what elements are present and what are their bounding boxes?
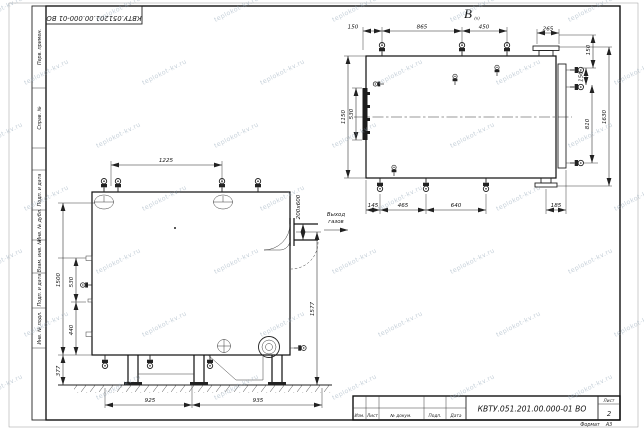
- bottom-dim-640: 640: [451, 203, 462, 209]
- drawing-sheet: КВТУ.051201.00.000-01 ВО Перв. примен. С…: [0, 0, 644, 430]
- top-view: [354, 43, 584, 192]
- top-doc-stamp: КВТУ.051201.00.000-01 ВО: [46, 14, 142, 22]
- bottom-dim-465: 465: [398, 203, 409, 209]
- blueprint-page: КВТУ.051201.00.000-01 ВО Перв. примен. С…: [0, 0, 644, 430]
- left-dim-1150: 1150: [341, 109, 347, 124]
- left-stamp-column: Перв. примен. Справ. № Подп. и дата Инв.…: [37, 29, 43, 345]
- top-dim-865: 865: [417, 25, 428, 31]
- border-label-inv-podl: Инв. № подл.: [37, 311, 43, 344]
- front-dim-right-1577: 1577: [310, 301, 316, 316]
- front-dim-left-530: 530: [69, 276, 75, 287]
- bottom-dim-145: 145: [368, 203, 379, 209]
- tb-col-izm: Изм.: [354, 413, 364, 419]
- top-dim-450: 450: [479, 25, 490, 31]
- tb-col-data: Дата: [449, 413, 461, 419]
- view-label: В: [464, 6, 472, 21]
- right-dim-150: 150: [579, 71, 585, 82]
- border-label-podp-data-2: Подп. и дата: [37, 274, 43, 307]
- border-label-sprav-no: Справ. №: [37, 106, 43, 129]
- border-label-podp-data-1: Подп. и дата: [37, 174, 43, 207]
- front-dim-bottom-925: 925: [145, 398, 156, 404]
- border-label-inv-dubl: Инв. № дубл.: [37, 209, 43, 242]
- border-label-vzam-inv: Взам. инв. №: [37, 240, 43, 273]
- left-dim-530: 530: [349, 108, 355, 119]
- top-dim-265: 265: [543, 27, 554, 33]
- flue-note-line2: газов: [328, 219, 343, 225]
- title-block: Изм. Лист № докум. Подп. Дата КВТУ.051.2…: [353, 396, 620, 428]
- tb-sheet-value: 2: [607, 410, 611, 418]
- right-dim-1630: 1630: [602, 109, 608, 124]
- top-dim-150-vert: 150: [586, 44, 592, 55]
- tb-doc-number: КВТУ.051.201.00.000-01 ВО: [478, 405, 587, 414]
- front-dim-bottom-935: 935: [253, 398, 264, 404]
- tb-format-label: Формат: [580, 422, 600, 428]
- front-view: [58, 179, 332, 393]
- top-dim-150: 150: [348, 25, 359, 31]
- flue-note-line1: Выход: [327, 212, 345, 218]
- tb-format-value: А3: [605, 422, 612, 428]
- front-dim-flue: 200х600: [296, 194, 302, 219]
- view-label-sub: (п): [474, 16, 480, 21]
- border-label-perv-primen: Перв. примен.: [37, 29, 43, 65]
- front-dim-left-1500: 1500: [56, 272, 62, 287]
- tb-sheet-label: Лист: [603, 398, 615, 404]
- front-dim-top: 1225: [159, 158, 174, 164]
- front-dim-left-440: 440: [69, 324, 75, 335]
- right-dim-810: 810: [585, 118, 591, 129]
- tb-col-list: Лист: [366, 413, 378, 419]
- bottom-dim-185: 185: [551, 203, 562, 209]
- tb-col-dokum: № докум.: [389, 413, 411, 419]
- front-dim-left-377: 377: [56, 365, 62, 376]
- tb-col-podp: Подп.: [428, 413, 441, 419]
